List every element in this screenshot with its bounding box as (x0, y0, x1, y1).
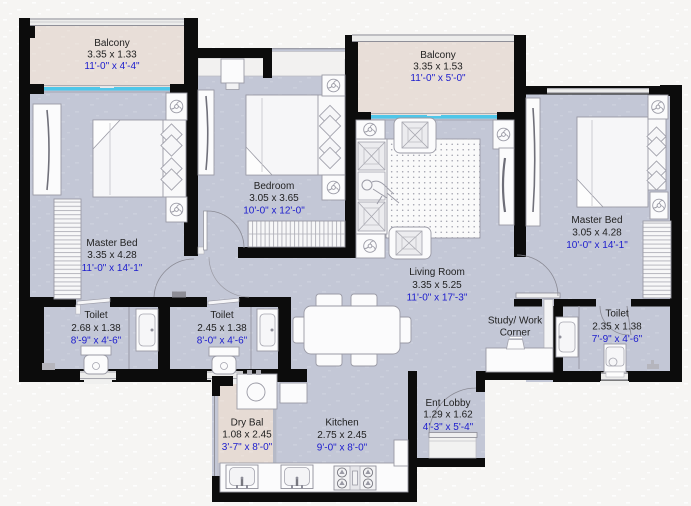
svg-text:3'-7" x 8'-0": 3'-7" x 8'-0" (222, 442, 273, 453)
svg-text:Toilet: Toilet (84, 310, 108, 321)
svg-text:4'-3" x 5'-4": 4'-3" x 5'-4" (423, 422, 474, 433)
svg-text:7'-9" x 4'-6": 7'-9" x 4'-6" (592, 334, 643, 345)
svg-text:10'-0" x 12'-0": 10'-0" x 12'-0" (243, 206, 305, 217)
svg-text:Living Room: Living Room (409, 267, 465, 278)
svg-text:3.35 x 5.25: 3.35 x 5.25 (412, 280, 462, 291)
svg-text:1.08 x 2.45: 1.08 x 2.45 (222, 430, 272, 441)
svg-text:3.05 x 4.28: 3.05 x 4.28 (572, 228, 622, 239)
svg-text:9'-0" x 8'-0": 9'-0" x 8'-0" (317, 443, 368, 454)
svg-text:3.35 x 4.28: 3.35 x 4.28 (87, 250, 137, 261)
svg-text:2.35 x 1.38: 2.35 x 1.38 (592, 322, 642, 333)
svg-text:Master Bed: Master Bed (571, 215, 622, 226)
svg-text:2.75 x 2.45: 2.75 x 2.45 (317, 430, 367, 441)
svg-text:2.45 x 1.38: 2.45 x 1.38 (197, 323, 247, 334)
svg-text:8'-9" x 4'-6": 8'-9" x 4'-6" (71, 336, 122, 347)
svg-text:Ent Lobby: Ent Lobby (425, 398, 470, 409)
svg-text:11'-0" x 17'-3": 11'-0" x 17'-3" (407, 293, 468, 304)
svg-text:3.35 x 1.53: 3.35 x 1.53 (413, 62, 463, 73)
svg-text:3.35 x 1.33: 3.35 x 1.33 (87, 50, 137, 61)
svg-text:Balcony: Balcony (420, 50, 456, 61)
svg-text:11'-0" x 14'-1": 11'-0" x 14'-1" (82, 263, 143, 274)
svg-text:Balcony: Balcony (94, 38, 130, 49)
svg-text:Toilet: Toilet (605, 309, 629, 320)
svg-text:Bedroom: Bedroom (254, 181, 295, 192)
svg-text:10'-0" x 14'-1": 10'-0" x 14'-1" (566, 240, 628, 251)
svg-text:Kitchen: Kitchen (325, 418, 358, 429)
svg-text:Master Bed: Master Bed (86, 238, 137, 249)
svg-text:Corner: Corner (500, 328, 531, 339)
svg-text:3.05 x 3.65: 3.05 x 3.65 (249, 193, 299, 204)
svg-text:8'-0" x 4'-6": 8'-0" x 4'-6" (197, 336, 248, 347)
svg-text:11'-0" x 5'-0": 11'-0" x 5'-0" (410, 73, 466, 84)
svg-text:Study/ Work: Study/ Work (488, 316, 543, 327)
svg-text:1.29 x 1.62: 1.29 x 1.62 (423, 410, 473, 421)
svg-text:2.68 x 1.38: 2.68 x 1.38 (71, 323, 121, 334)
svg-text:11'-0" x 4'-4": 11'-0" x 4'-4" (84, 61, 140, 72)
svg-text:Toilet: Toilet (210, 310, 234, 321)
svg-text:Dry Bal: Dry Bal (231, 418, 264, 429)
